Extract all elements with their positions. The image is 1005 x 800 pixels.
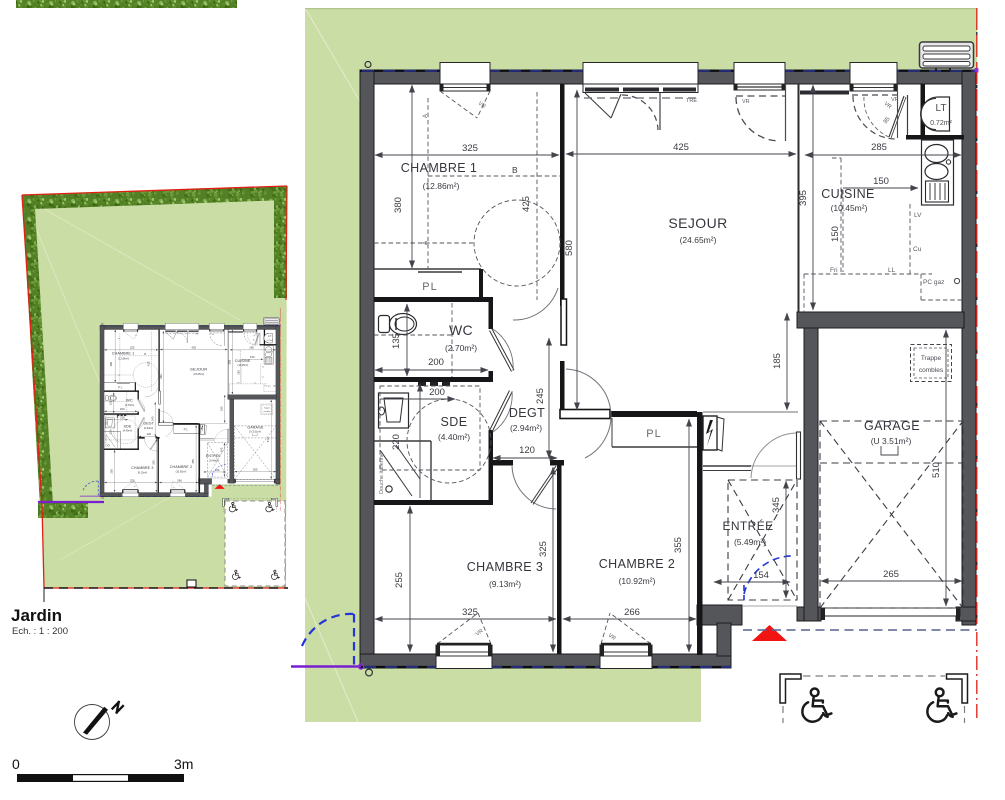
svg-text:(4.40m²): (4.40m²): [438, 432, 470, 442]
svg-text:DEGT: DEGT: [509, 406, 545, 420]
svg-text:WC: WC: [449, 322, 473, 338]
svg-text:200: 200: [428, 357, 444, 368]
svg-text:0.72m²: 0.72m²: [930, 120, 952, 127]
svg-text:325: 325: [462, 607, 478, 618]
svg-text:B: B: [512, 165, 518, 175]
svg-text:CHAMBRE 1: CHAMBRE 1: [401, 161, 478, 175]
svg-text:SEJOUR: SEJOUR: [668, 215, 727, 231]
svg-text:425: 425: [673, 142, 689, 153]
svg-text:120: 120: [519, 445, 535, 456]
svg-text:150: 150: [830, 226, 841, 242]
svg-text:(5.49m²): (5.49m²): [734, 537, 766, 547]
svg-text:380: 380: [393, 197, 404, 213]
svg-text:CHAMBRE 3: CHAMBRE 3: [467, 560, 544, 574]
svg-text:220: 220: [391, 434, 402, 450]
svg-text:0: 0: [12, 756, 20, 772]
svg-text:Jardin: Jardin: [11, 606, 62, 625]
svg-text:345: 345: [771, 497, 782, 513]
svg-text:(2.70m²): (2.70m²): [445, 343, 477, 353]
svg-text:GARAGE: GARAGE: [864, 419, 920, 433]
svg-text:285: 285: [871, 142, 887, 153]
svg-text:200: 200: [429, 387, 445, 398]
svg-text:(12.86m²): (12.86m²): [423, 181, 460, 191]
svg-text:PL: PL: [646, 428, 661, 440]
svg-text:(10.45m²): (10.45m²): [831, 203, 868, 213]
svg-text:SDE: SDE: [441, 415, 468, 429]
svg-text:510: 510: [931, 462, 942, 478]
svg-text:425: 425: [521, 196, 532, 212]
svg-text:355: 355: [673, 537, 684, 553]
svg-text:A: A: [423, 114, 429, 118]
svg-text:154: 154: [753, 570, 769, 581]
svg-text:265: 265: [883, 569, 899, 580]
svg-text:VR: VR: [742, 99, 750, 105]
svg-text:Ech. : 1 : 200: Ech. : 1 : 200: [12, 626, 68, 637]
svg-text:185: 185: [772, 353, 783, 369]
svg-text:combles: combles: [919, 367, 944, 374]
svg-text:255: 255: [394, 572, 405, 588]
svg-text:(U 3.51m²): (U 3.51m²): [871, 436, 912, 446]
svg-text:(9.13m²): (9.13m²): [489, 579, 521, 589]
svg-text:Fri: Fri: [830, 267, 838, 274]
svg-text:LL: LL: [888, 267, 896, 274]
svg-text:ENTRÉE: ENTRÉE: [722, 518, 773, 533]
svg-text:LV: LV: [914, 212, 922, 219]
svg-text:PC gaz: PC gaz: [923, 279, 944, 286]
svg-text:580: 580: [564, 240, 575, 256]
svg-text:266: 266: [624, 607, 640, 618]
svg-text:(10.92m²): (10.92m²): [619, 576, 656, 586]
svg-text:135: 135: [391, 333, 402, 349]
svg-text:3m: 3m: [174, 756, 193, 772]
svg-text:Cu: Cu: [913, 246, 922, 253]
svg-text:PL: PL: [422, 281, 437, 293]
svg-text:325: 325: [462, 143, 478, 154]
svg-text:A: A: [423, 241, 429, 245]
svg-text:325: 325: [538, 541, 549, 557]
svg-text:(24.65m²): (24.65m²): [680, 235, 717, 245]
svg-text:CHAMBRE 2: CHAMBRE 2: [599, 557, 676, 571]
svg-text:Trappe: Trappe: [921, 355, 942, 362]
svg-text:395: 395: [798, 190, 809, 206]
svg-text:LT: LT: [936, 103, 947, 114]
svg-text:245: 245: [535, 388, 546, 404]
svg-text:TRE: TRE: [686, 98, 697, 104]
svg-text:(2.94m²): (2.94m²): [510, 423, 542, 433]
svg-text:CUISINE: CUISINE: [821, 187, 875, 201]
svg-text:VR: VR: [891, 97, 899, 103]
svg-text:150: 150: [873, 176, 889, 187]
